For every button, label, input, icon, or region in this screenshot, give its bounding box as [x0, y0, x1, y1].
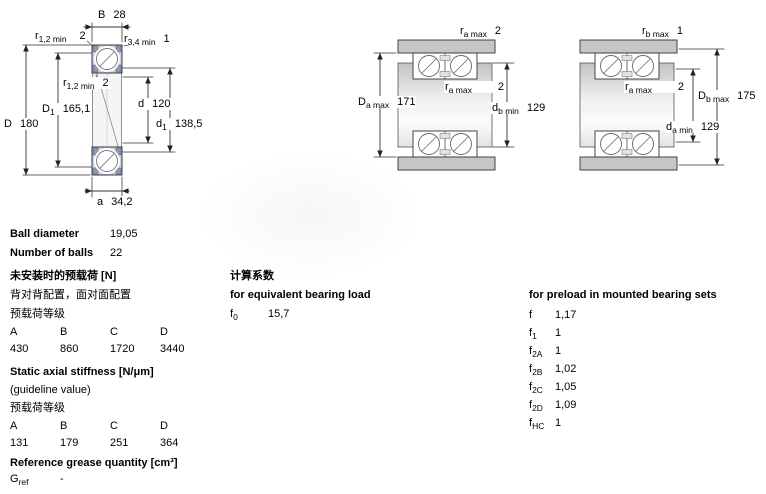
dim-label-ra-max-mid-right: ra max2: [624, 81, 685, 93]
number-of-balls-label: Number of balls: [10, 247, 110, 260]
f0-value: 15,7: [268, 308, 289, 320]
dim-label-db-min: db min129: [491, 102, 546, 114]
factor-row-f1: f11: [529, 327, 561, 340]
dim-label-a: a34,2: [96, 196, 134, 208]
dim-label-r12-mid: r1,2 min2: [62, 77, 110, 89]
dim-label-r34-top: r3,4 min1: [123, 33, 171, 45]
grease-row: Gref-: [10, 473, 64, 486]
preload-arrangement-note: 背对背配置，面对面配置: [10, 289, 131, 302]
stiffness-class-label: 预载荷等级: [10, 402, 65, 415]
bearing-datasheet-page: B28 r1,2 min2 r3,4 min1 r1,2 min2 D1165,…: [0, 0, 766, 494]
dim-label-B: B28: [97, 9, 127, 21]
dim-label-da-min: da min129: [665, 121, 720, 133]
dim-label-ra-max-top: ra max2: [459, 25, 502, 37]
dim-label-D: D180: [3, 118, 39, 130]
dim-label-d: d120: [137, 98, 171, 110]
ball-diameter-value: 19,05: [110, 228, 138, 240]
stiffness-heading: Static axial stiffness [N/μm]: [10, 366, 154, 379]
grease-value: -: [60, 473, 64, 485]
factor-row-fhc: fHC1: [529, 417, 561, 430]
housing-bar: [398, 40, 495, 53]
stiffness-table-header: ABCD: [10, 420, 210, 433]
preload-table-header: ABCD: [10, 326, 210, 339]
number-of-balls-row: Number of balls22: [10, 247, 122, 260]
factor-row-f2a: f2A1: [529, 345, 561, 358]
stiffness-table-values: 131179251364: [10, 437, 210, 450]
factor-row-f2b: f2B1,02: [529, 363, 576, 376]
factor-row-f: f1,17: [529, 309, 576, 322]
preload-sets-heading: for preload in mounted bearing sets: [529, 289, 717, 302]
housing-bar: [580, 157, 677, 170]
housing-bar: [580, 40, 677, 53]
dim-label-D1: D1165,1: [41, 103, 91, 115]
housing-bar: [398, 157, 495, 170]
ball-diameter-row: Ball diameter19,05: [10, 228, 138, 241]
drawing-mounted-set-b: [580, 40, 724, 170]
dim-label-Db-max: Db max175: [697, 90, 756, 102]
dim-label-rb-max-top: rb max1: [641, 25, 684, 37]
equiv-load-heading: for equivalent bearing load: [230, 289, 371, 302]
dim-label-d1: d1138,5: [155, 118, 203, 130]
dim-label-Da-max: Da max171: [357, 96, 416, 108]
preload-table-values: 43086017203440: [10, 343, 210, 356]
factor-row-f2c: f2C1,05: [529, 381, 576, 394]
ball-diameter-label: Ball diameter: [10, 228, 110, 241]
grease-heading: Reference grease quantity [cm³]: [10, 457, 178, 470]
dim-label-r12-top: r1,2 min2: [34, 30, 87, 42]
stiffness-note: (guideline value): [10, 384, 91, 397]
number-of-balls-value: 22: [110, 247, 122, 259]
calc-factors-heading: 计算系数: [230, 270, 274, 283]
preload-class-label: 预载荷等级: [10, 308, 65, 321]
dim-label-ra-max-mid: ra max2: [444, 81, 505, 93]
preload-unmounted-heading: 未安装时的预载荷 [N]: [10, 270, 116, 283]
factor-row-f2d: f2D1,09: [529, 399, 576, 412]
f0-row: f015,7: [230, 308, 289, 321]
